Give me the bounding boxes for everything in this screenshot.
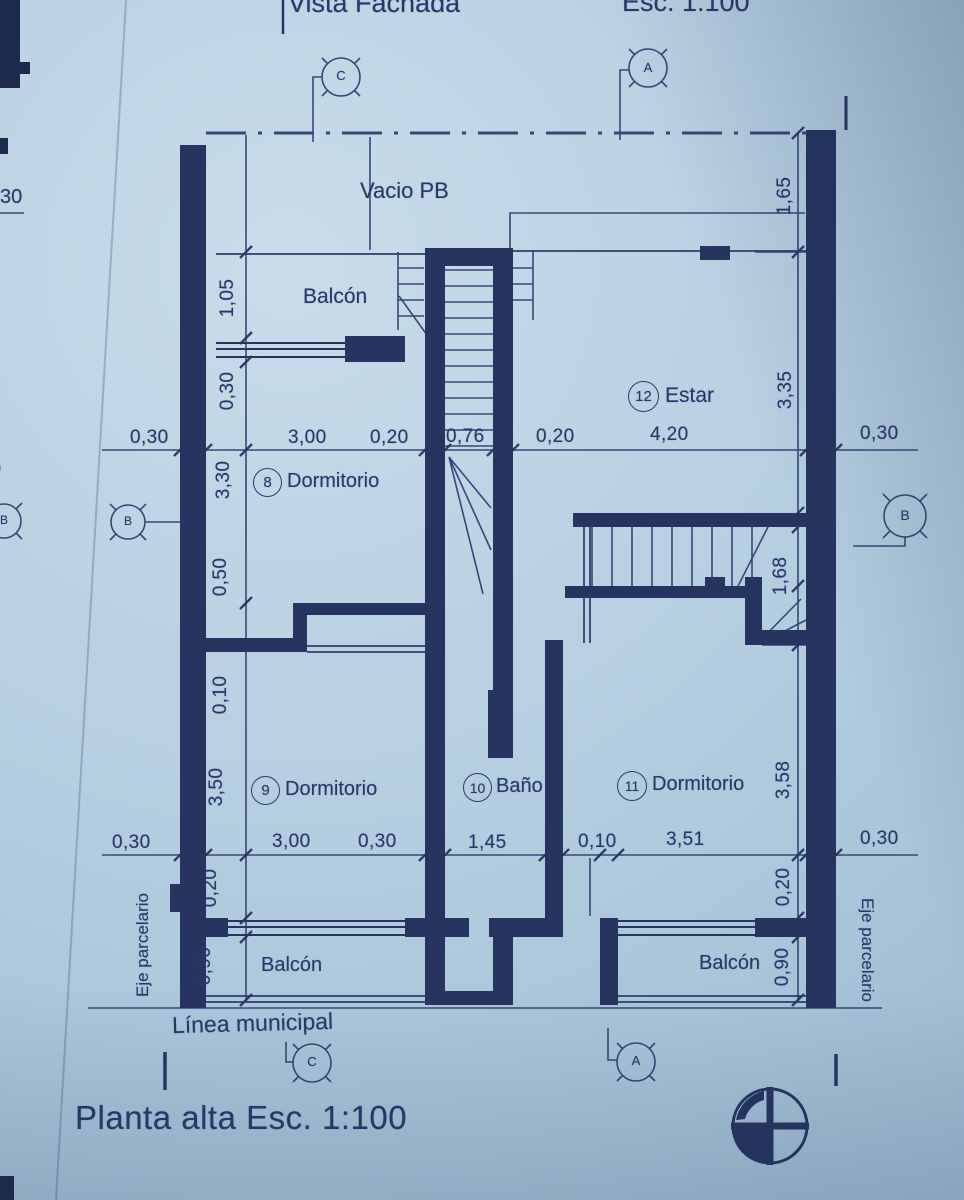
- municipal-line-label: Línea municipal: [172, 1008, 334, 1039]
- void-label: Vacio PB: [360, 178, 449, 204]
- dim-bot-1: 3,00: [272, 831, 311, 853]
- dim-bot-4: 0,10: [578, 831, 617, 853]
- wall-dorm9-south-pier-right: [405, 918, 425, 937]
- room-label-dorm9: Dormitorio: [285, 778, 377, 801]
- room-label-bano: Baño: [496, 775, 543, 798]
- dim-left-1: 0,30: [218, 363, 238, 419]
- dim-right-5: 0,90: [773, 939, 793, 995]
- top-title-scale: Esc. 1:100: [622, 0, 750, 18]
- dim-right-4: 0,20: [774, 859, 794, 915]
- room-label-dorm11: Dormitorio: [652, 773, 744, 796]
- dim-bot-2: 0,30: [358, 831, 397, 853]
- compass-icon: [731, 1087, 809, 1165]
- wall-dorm11-south-pier: [755, 918, 806, 937]
- property-line-right-label: Eje parcelario: [857, 885, 877, 1015]
- rail-stair-a: [583, 527, 585, 643]
- rail-balcony-top: [216, 253, 425, 255]
- window-dorm11: [618, 920, 755, 936]
- line-top-wall-a: [513, 250, 700, 252]
- wall-dorm11-north: [565, 586, 755, 598]
- scan-edge-mark: [0, 1176, 14, 1200]
- line-top-wall-b: [730, 250, 806, 252]
- dim-mid-4: 0,20: [536, 426, 575, 448]
- edge-note-30: 30: [0, 186, 22, 209]
- dim-left-6: 0,20: [201, 860, 221, 916]
- floor-plan-photo: Vista Fachada Esc. 1:100 Planta alta Esc…: [0, 0, 964, 1200]
- dim-mid-2: 0,20: [370, 427, 409, 449]
- wall-stair-top: [425, 248, 513, 266]
- room-number-9: 9: [251, 776, 280, 805]
- dim-left-3: 0,50: [211, 549, 231, 605]
- dim-right-2: 1,68: [771, 548, 791, 604]
- room-number-12: 12: [628, 381, 659, 412]
- dim-right-1: 3,35: [776, 362, 796, 418]
- dim-bot-3: 1,45: [468, 832, 507, 854]
- dim-mid-0: 0,30: [130, 427, 169, 449]
- line-closet-b: [307, 651, 425, 653]
- wall-bath-left: [425, 642, 445, 1005]
- room-number-10: 10: [463, 773, 492, 802]
- room-number-11: 11: [617, 771, 647, 801]
- wall-estar-south: [573, 513, 806, 527]
- dim-right-3: 3,58: [774, 752, 794, 808]
- edge-note-partial: 0: [0, 458, 1, 481]
- scan-edge-mark: [0, 138, 8, 154]
- dim-left-7: 0,90: [195, 938, 215, 994]
- window-dorm9: [228, 920, 405, 936]
- wall-balcony-right-left: [600, 918, 618, 1005]
- dim-bot-5: 3,51: [666, 829, 705, 851]
- dim-mid-5: 4,20: [650, 424, 689, 446]
- property-line-left-label: Eje parcelario: [133, 880, 153, 1010]
- dim-left-4: 0,10: [211, 667, 231, 723]
- dim-left-2: 3,30: [214, 452, 234, 508]
- wall-bump: [705, 577, 725, 587]
- balcony-top-label: Balcón: [303, 285, 367, 309]
- wall-top-stub: [700, 246, 730, 260]
- scan-edge-mark: [0, 0, 20, 88]
- wall-shaft-bottom-cap: [425, 991, 513, 1005]
- dim-bot-6: 0,30: [860, 828, 899, 850]
- wall-stairshaft-right: [493, 266, 513, 758]
- dim-right-0: 1,65: [775, 168, 795, 224]
- dim-left-0: 1,05: [218, 270, 238, 326]
- room-label-dorm8: Dormitorio: [287, 470, 379, 493]
- room-number-8: 8: [253, 468, 282, 497]
- rail-balcony-br-a: [618, 995, 806, 997]
- wall-dorm9-south-pier-left: [206, 918, 228, 937]
- wall-dorm8-south-b: [300, 603, 425, 615]
- wall-bath-south-a: [445, 918, 469, 937]
- wall-stairshaft-left: [425, 266, 445, 642]
- rail-balcony-br-b: [618, 1001, 806, 1003]
- wall-balcony-pier: [345, 336, 405, 362]
- scan-edge-mark: [0, 62, 30, 74]
- dim-mid-3: 0,76: [446, 426, 485, 448]
- wall-landing-horizontal: [755, 630, 806, 645]
- wall-right-outer: [806, 130, 836, 1008]
- top-title-left: Vista Fachada: [288, 0, 460, 19]
- dim-mid-6: 0,30: [860, 423, 899, 445]
- wall-bath-south-b: [489, 918, 545, 937]
- room-label-estar: Estar: [665, 384, 714, 408]
- rail-balcony-bl-b: [206, 1001, 425, 1003]
- window-dorm8: [216, 342, 345, 358]
- dim-mid-1: 3,00: [288, 427, 327, 449]
- balcony-br-label: Balcón: [699, 952, 760, 975]
- rail-stair-b: [589, 527, 591, 643]
- wall-bath-right: [545, 640, 563, 937]
- dim-left-5: 3,50: [207, 759, 227, 815]
- rail-balcony-bl-a: [206, 995, 425, 997]
- line-closet-a: [307, 645, 425, 647]
- plan-title: Planta alta Esc. 1:100: [75, 1099, 407, 1137]
- wall-shower-partition: [488, 690, 510, 758]
- balcony-bl-label: Balcón: [261, 954, 322, 977]
- dim-bot-0: 0,30: [112, 832, 151, 854]
- wall-dorm8-south-a: [206, 638, 300, 652]
